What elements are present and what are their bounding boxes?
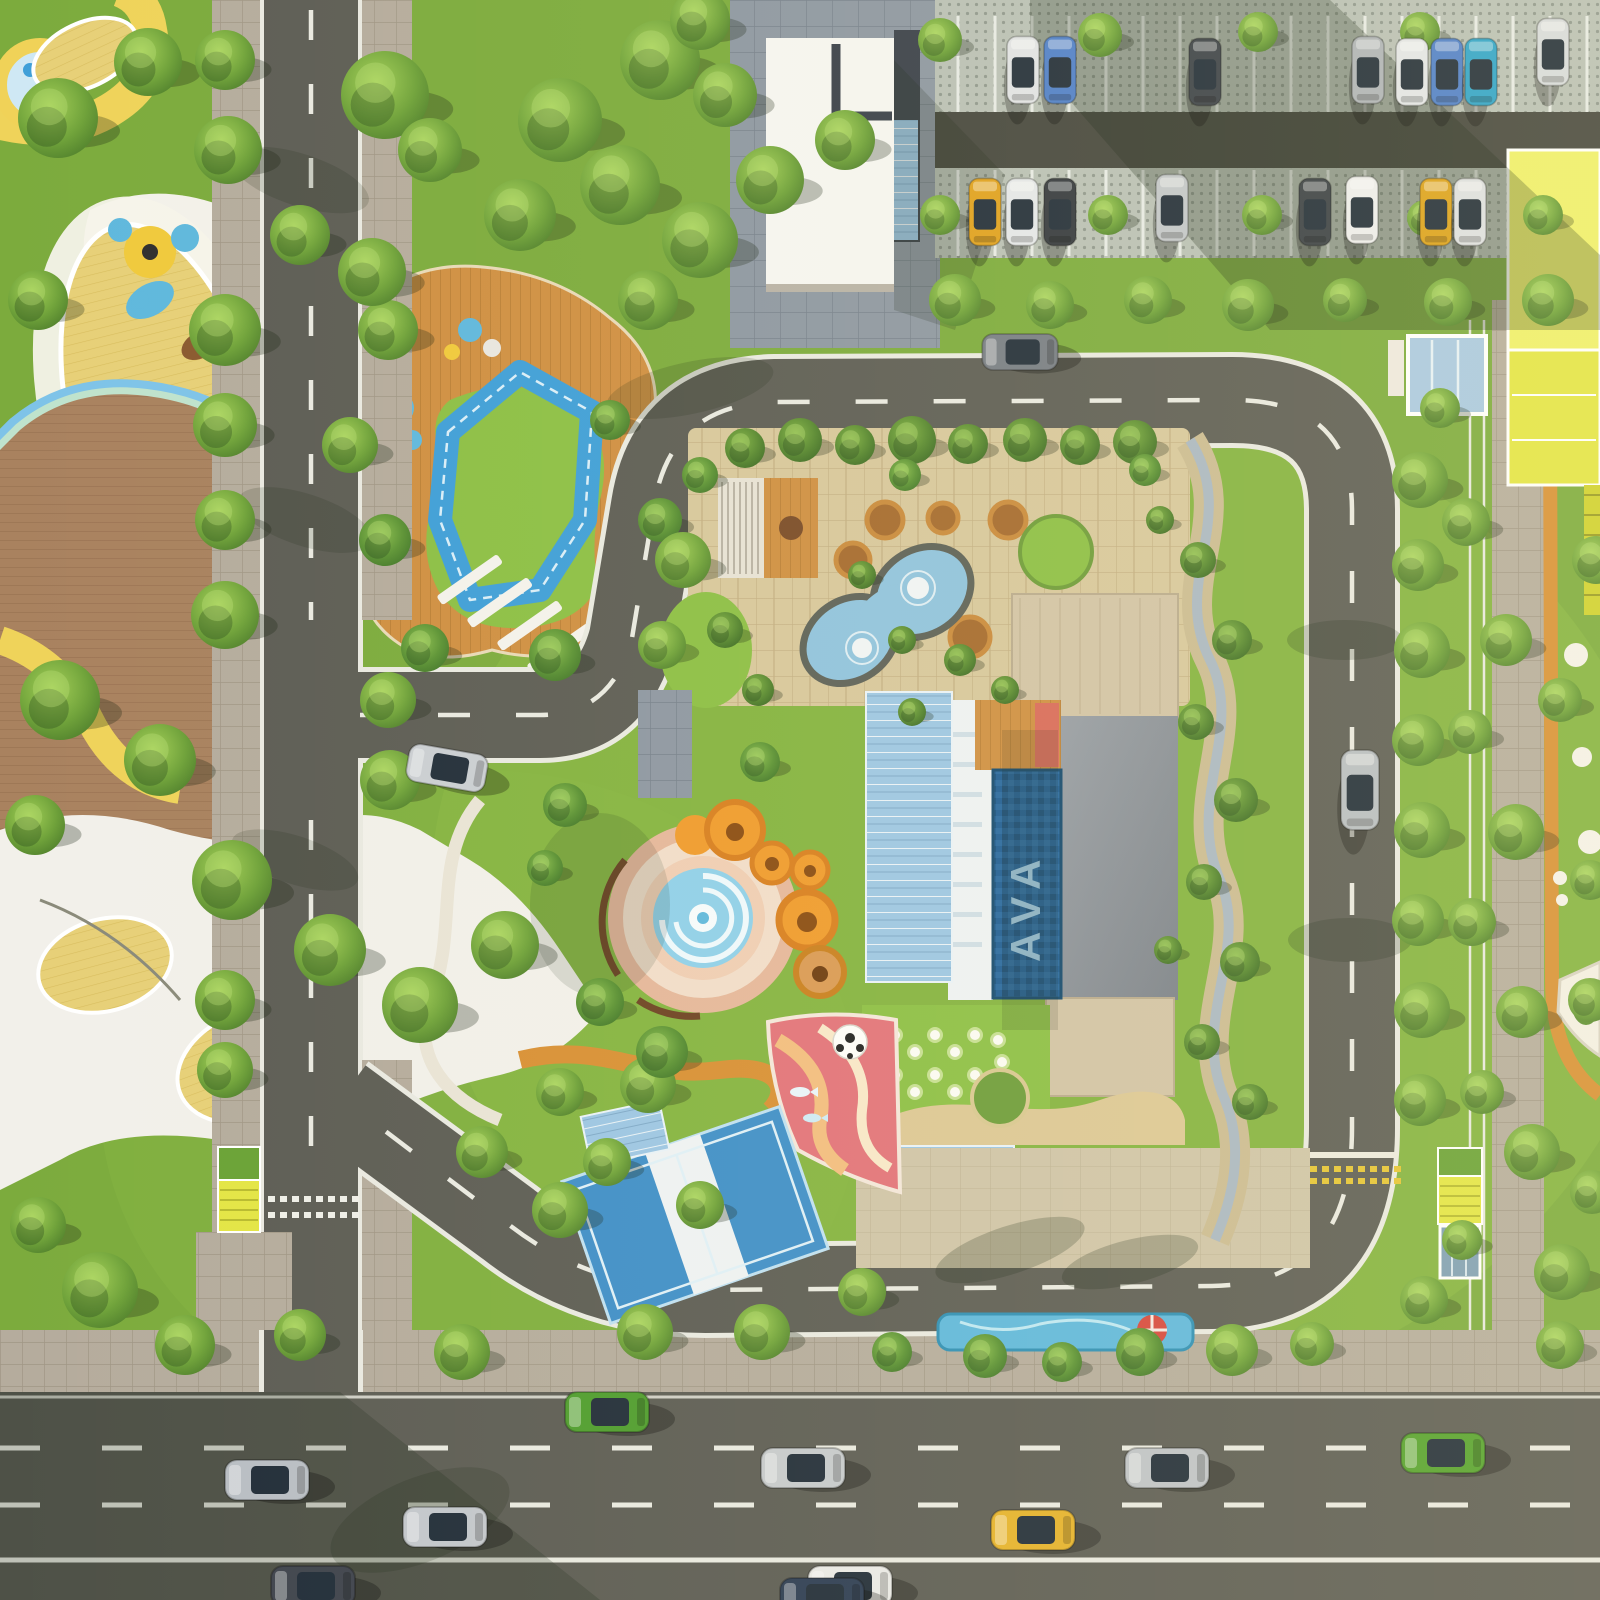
sunlight-overlay bbox=[0, 0, 1600, 1600]
aerial-masterplan-render: AVA bbox=[0, 0, 1600, 1600]
